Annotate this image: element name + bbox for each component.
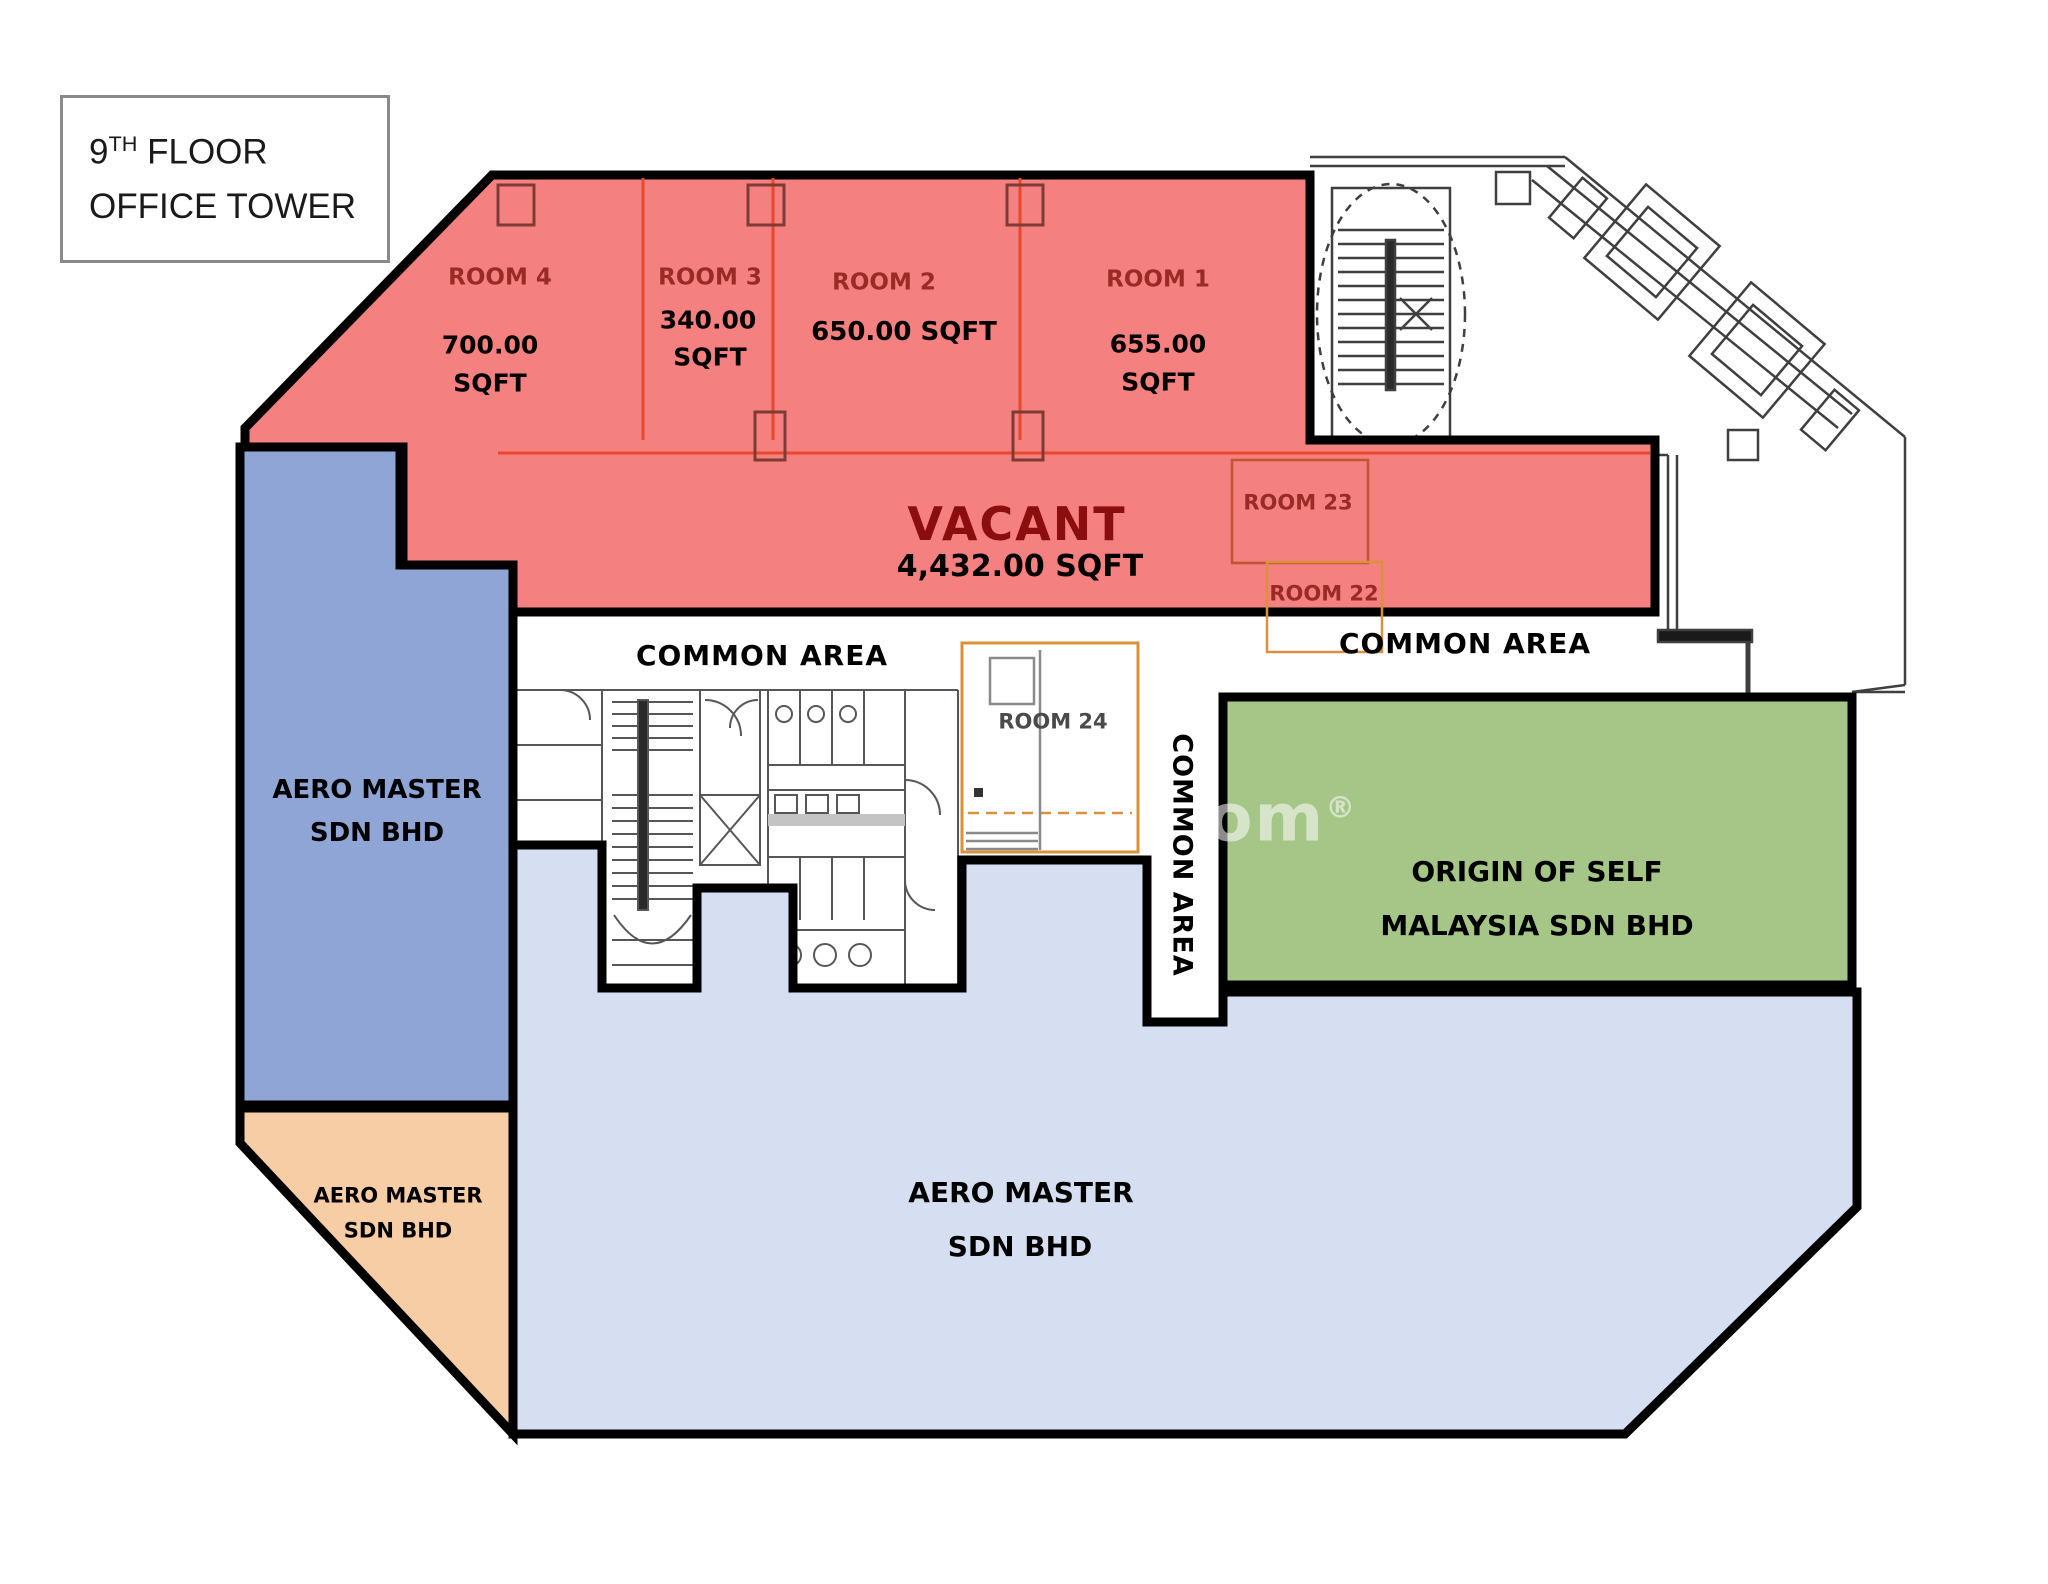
aero-bottom-line1: AERO MASTER: [908, 1179, 1133, 1207]
room1-label: ROOM 1: [1106, 269, 1210, 292]
room2-label: ROOM 2: [832, 272, 936, 295]
aero-left-line2: SDN BHD: [310, 820, 444, 846]
stairs-icon: [612, 700, 693, 965]
room4-label: ROOM 4: [448, 267, 552, 290]
room1-area-line1: 655.00: [1110, 332, 1206, 357]
vacant-area-label: 4,432.00 SQFT: [897, 552, 1144, 582]
aero-master-peach-region: [240, 1108, 513, 1434]
stairs-icon: [1317, 184, 1465, 444]
room24-label: ROOM 24: [998, 712, 1107, 733]
room4-area-line1: 700.00: [442, 333, 538, 358]
title-line2: OFFICE TOWER: [89, 187, 387, 227]
room3-area-line1: 340.00: [660, 308, 756, 333]
aero-peach-line2: SDN BHD: [344, 1221, 452, 1242]
common-area-left-label: COMMON AREA: [636, 642, 888, 670]
room4-area-line2: SQFT: [453, 371, 526, 396]
title-line1: 9TH FLOOR: [89, 131, 387, 173]
room24-outline: [962, 643, 1138, 852]
common-area-vertical-label: COMMON AREA: [1167, 733, 1198, 976]
room23-label: ROOM 23: [1243, 493, 1352, 514]
aero-peach-line1: AERO MASTER: [313, 1186, 482, 1207]
elevator-icon: [700, 690, 760, 865]
room3-label: ROOM 3: [658, 267, 762, 290]
common-area-right-label: COMMON AREA: [1339, 630, 1591, 658]
room1-area-line2: SQFT: [1121, 370, 1194, 395]
title-box: 9TH FLOOR OFFICE TOWER: [60, 95, 390, 263]
room2-area: 650.00 SQFT: [811, 319, 997, 345]
origin-line2: MALAYSIA SDN BHD: [1380, 912, 1693, 940]
room22-label: ROOM 22: [1269, 584, 1378, 605]
vacant-label: VACANT: [907, 501, 1126, 547]
aero-bottom-line2: SDN BHD: [948, 1233, 1093, 1261]
origin-line1: ORIGIN OF SELF: [1411, 858, 1662, 886]
escalator-icon: [1689, 282, 1824, 417]
room3-area-line2: SQFT: [673, 345, 746, 370]
floor-plan: 9TH FLOOR OFFICE TOWER .com® ROOM 4 700.…: [0, 0, 2048, 1584]
aero-left-line1: AERO MASTER: [272, 777, 481, 803]
